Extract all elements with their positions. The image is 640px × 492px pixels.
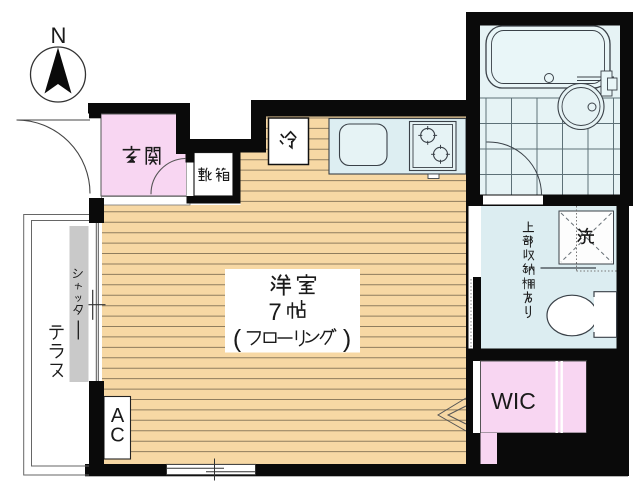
svg-text:C: C: [110, 425, 124, 447]
svg-text:7: 7: [268, 299, 281, 326]
svg-text:(: (: [233, 325, 242, 353]
svg-text:): ): [343, 325, 351, 353]
svg-text:N: N: [51, 23, 67, 48]
svg-text:WIC: WIC: [491, 388, 536, 414]
